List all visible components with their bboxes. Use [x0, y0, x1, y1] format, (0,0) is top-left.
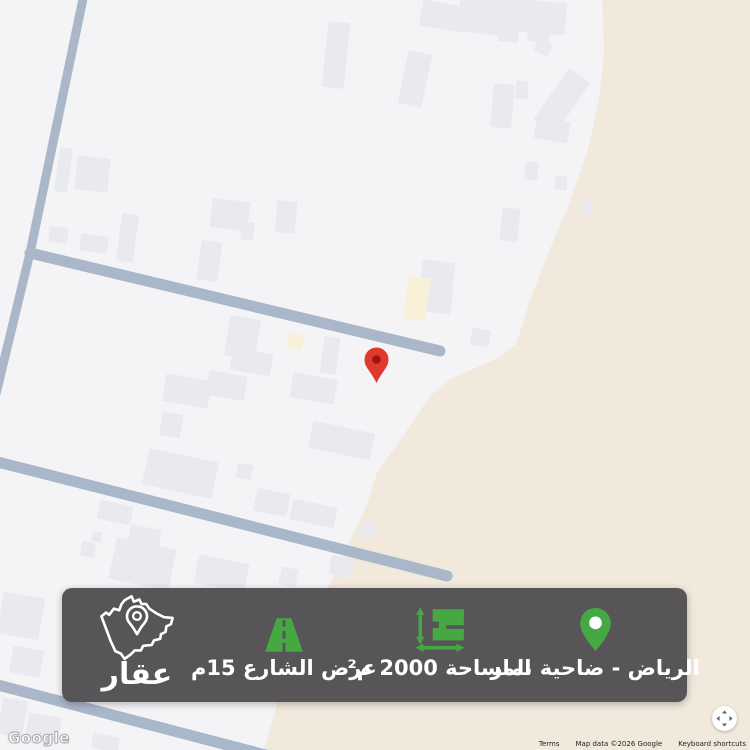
- map-marker-dot: [372, 355, 381, 364]
- building: [240, 221, 255, 240]
- building: [490, 83, 515, 129]
- saudi-map-pin-icon: [97, 594, 177, 662]
- location-pin-icon: [577, 595, 614, 653]
- building: [579, 200, 592, 213]
- pan-arrows-icon: [715, 709, 734, 728]
- listing-info-banner: الرياض - ضاحية نمار المساحة 2000 م²: [62, 588, 687, 702]
- map-data-text: Map data ©2026 Google: [575, 740, 662, 748]
- area-info: المساحة 2000 م²: [362, 588, 518, 702]
- building: [159, 411, 184, 438]
- pan-control[interactable]: [712, 706, 737, 731]
- building: [274, 200, 297, 234]
- building: [0, 592, 45, 641]
- brand-name: عقار: [102, 660, 173, 690]
- map-page: الرياض - ضاحية نمار المساحة 2000 م²: [0, 0, 750, 750]
- location-info: الرياض - ضاحية نمار: [517, 588, 673, 702]
- terms-link[interactable]: Terms: [539, 740, 560, 748]
- building: [499, 207, 520, 242]
- building: [48, 226, 69, 244]
- building: [236, 463, 253, 480]
- building: [74, 155, 110, 192]
- building: [287, 333, 304, 350]
- area-dimensions-icon: [414, 595, 466, 653]
- building: [524, 161, 539, 180]
- google-logo[interactable]: Google: [8, 729, 70, 747]
- road-icon: [263, 595, 305, 653]
- building: [515, 81, 529, 100]
- building: [91, 531, 103, 543]
- building: [80, 541, 96, 558]
- building: [9, 646, 44, 678]
- street-width-label: عرض الشارع 15م: [191, 656, 377, 681]
- keyboard-shortcuts-link[interactable]: Keyboard shortcuts: [678, 740, 746, 748]
- building: [470, 328, 491, 347]
- attribution-bar: Terms Map data ©2026 Google Keyboard sho…: [539, 740, 746, 748]
- building: [554, 175, 567, 190]
- brand-logo: عقار: [68, 588, 206, 702]
- street-width-info: عرض الشارع 15م: [206, 588, 362, 702]
